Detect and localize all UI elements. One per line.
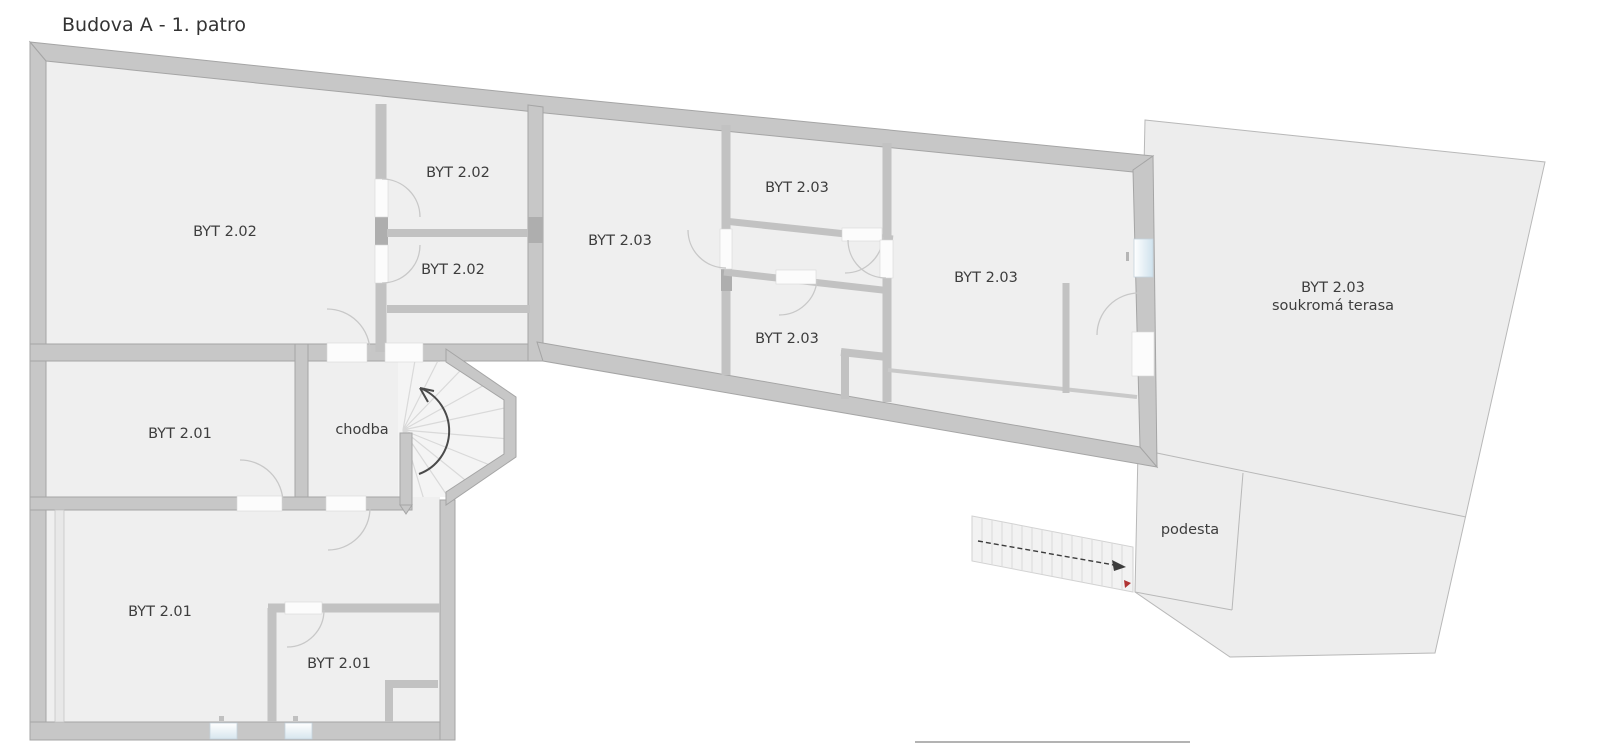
chodba-left-wall <box>295 344 308 510</box>
label-byt203-right: BYT 2.03 <box>954 270 1018 286</box>
floor-plan-canvas: BYT 2.02 BYT 2.02 BYT 2.02 BYT 2.03 BYT … <box>0 0 1600 746</box>
byt201-pilaster <box>55 510 64 722</box>
door-byt202-room2 <box>375 245 388 283</box>
label-byt201-small: BYT 2.01 <box>307 656 371 672</box>
external-staircase <box>972 516 1133 592</box>
byt203-closet-wall-h <box>841 352 887 357</box>
window-sill-tick <box>219 716 224 721</box>
south-wall-left-block <box>30 722 455 740</box>
label-byt201-upper: BYT 2.01 <box>148 426 212 442</box>
door-byt203-main <box>720 229 732 269</box>
room-floors <box>46 61 1140 722</box>
label-chodba: chodba <box>335 422 388 438</box>
window-byt203-east <box>1134 239 1153 277</box>
opening-chodba-entry <box>385 343 423 362</box>
door-byt201-small <box>285 602 322 614</box>
west-wall <box>30 42 46 740</box>
label-byt201-main: BYT 2.01 <box>128 604 192 620</box>
mid-dividing-wall <box>30 344 543 361</box>
door-byt202-main <box>327 343 367 362</box>
label-byt203-upper: BYT 2.03 <box>765 180 829 196</box>
byt202-right-wall-pier <box>528 217 543 243</box>
room-byt201-floor <box>46 361 440 722</box>
byt202-divider-pier <box>375 217 388 246</box>
door-terrace <box>1132 332 1154 376</box>
label-byt202-room2: BYT 2.02 <box>421 262 485 278</box>
window-byt201-left <box>210 723 237 739</box>
window-sill-tick <box>1126 252 1129 261</box>
door-byt203-upper <box>842 228 882 241</box>
door-chodba-lower <box>326 496 366 511</box>
spiral-stair-floor <box>398 362 514 497</box>
label-podesta: podesta <box>1161 522 1219 538</box>
door-byt201-upper <box>237 496 282 511</box>
door-byt202-room1 <box>375 179 388 217</box>
door-byt203-right <box>880 240 893 278</box>
door-byt203-lower <box>776 270 816 284</box>
page-title: Budova A - 1. patro <box>62 14 246 36</box>
label-byt202-main: BYT 2.02 <box>193 224 257 240</box>
label-terrace-line1: BYT 2.03 <box>1301 280 1365 296</box>
label-terrace-line2: soukromá terasa <box>1272 298 1394 314</box>
terrace-outline <box>1135 120 1545 657</box>
stair-stub-wall <box>400 433 412 505</box>
window-byt201-right <box>285 723 312 739</box>
label-byt203-main: BYT 2.03 <box>588 233 652 249</box>
floor-plan-page: BYT 2.02 BYT 2.02 BYT 2.02 BYT 2.03 BYT … <box>0 0 1600 746</box>
window-sill-tick <box>293 716 298 721</box>
label-byt202-room1: BYT 2.02 <box>426 165 490 181</box>
east-wall-left-block <box>440 500 455 740</box>
private-terrace-area <box>1135 120 1545 657</box>
label-byt203-lower: BYT 2.03 <box>755 331 819 347</box>
